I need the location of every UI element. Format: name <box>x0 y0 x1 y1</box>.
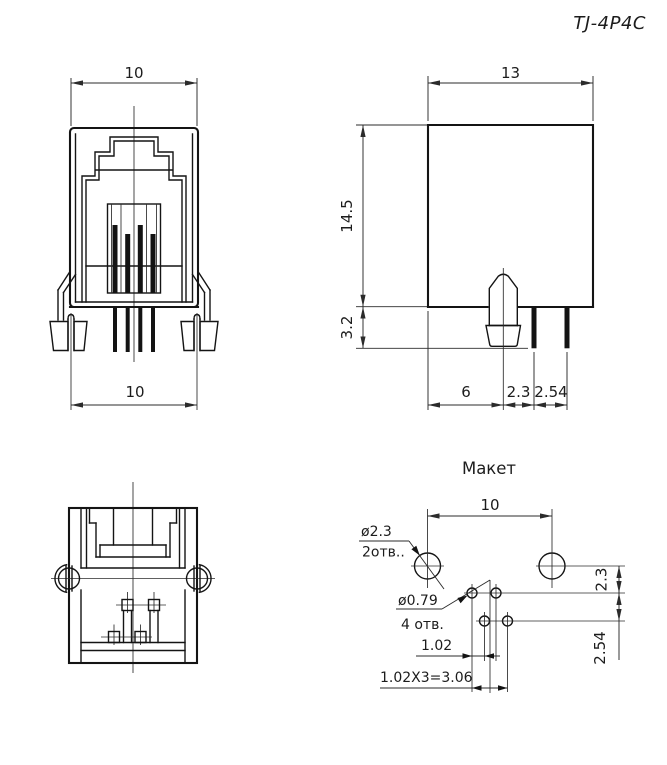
pcb-pin-dia-label: ø0.79 <box>398 593 438 609</box>
pcb-dim-span-total-label: 1.02X3=3.06 <box>380 670 473 686</box>
technical-drawing-sheet: TJ-4P4C <box>0 0 667 765</box>
side-view: 13 14.5 3.2 6 2.3 2.54 <box>338 64 593 410</box>
pcb-dim-span-total: 1.02X3=3.06 <box>380 670 508 691</box>
pcb-dim-lock-pitch-label: 10 <box>480 496 499 514</box>
drawing-title: TJ-4P4C <box>573 13 646 34</box>
pcb-dim-stagger-label: 1.02 <box>421 638 452 654</box>
pcb-pin-count-label: 4 отв. <box>401 617 444 633</box>
front-dim-width-top-label: 10 <box>124 64 143 82</box>
pcb-dim-rows: 2.3 2.54 <box>591 566 619 665</box>
pcb-dim-row-offset-label: 2.3 <box>593 568 611 592</box>
bottom-view <box>51 482 215 673</box>
pcb-lock-hole-callout: ø2.3 2отв.. <box>359 524 444 589</box>
pcb-lock-dia-label: ø2.3 <box>361 524 392 540</box>
side-pin-1 <box>532 307 537 348</box>
pcb-dim-row-pitch-label: 2.54 <box>591 631 609 664</box>
front-view: 10 10 <box>50 64 218 410</box>
side-dim-standoff: 3.2 <box>338 307 528 349</box>
side-dim-depth: 13 <box>428 64 593 121</box>
pcb-lock-count-label: 2отв.. <box>362 545 405 561</box>
side-dim-pin-pitch-label: 2.54 <box>534 383 567 401</box>
pcb-dim-lock-pitch: 10 <box>428 496 553 516</box>
pcb-layout-view: Макет 10 ø2.3 2отв.. <box>359 459 625 693</box>
side-dim-pin1-offset-label: 2.3 <box>507 383 531 401</box>
side-dim-depth-label: 13 <box>501 64 520 82</box>
pcb-dim-stagger: 1.02 <box>416 638 500 659</box>
side-dim-height: 14.5 <box>338 125 427 307</box>
drawing-svg: TJ-4P4C <box>0 0 667 765</box>
bottom-pins <box>101 592 166 645</box>
front-dim-width-bottom-label: 10 <box>125 383 144 401</box>
side-pin-2 <box>565 307 570 348</box>
side-dim-height-label: 14.5 <box>338 199 356 232</box>
pcb-layout-title: Макет <box>462 459 516 478</box>
side-dim-standoff-label: 3.2 <box>338 316 356 340</box>
side-dim-latch-offset-label: 6 <box>461 383 471 401</box>
